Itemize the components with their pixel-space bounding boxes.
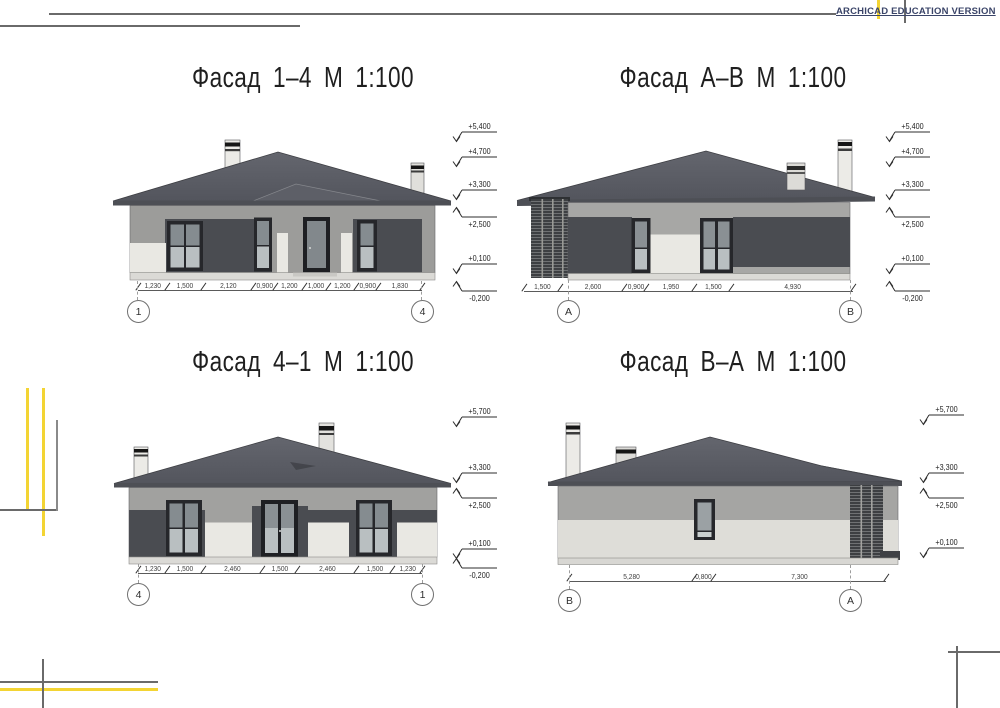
- levels-facade-4-1: +5,700+3,300+2,500+0,100-0,200: [452, 0, 498, 708]
- dim-segment: 1,200: [328, 282, 357, 298]
- dim-segment: 2,600: [561, 283, 625, 299]
- roof: [114, 437, 451, 484]
- window: [632, 218, 651, 273]
- dim-value: 2,120: [206, 281, 251, 290]
- dim-segment: 1,500: [262, 565, 298, 581]
- level-value: +3,300: [931, 462, 962, 472]
- axis-extension: [568, 280, 569, 300]
- elevation-marker: +5,700: [919, 402, 965, 428]
- dim-value: 1,500: [170, 281, 202, 290]
- decor-line-bl-h: [0, 681, 158, 683]
- level-value: +2,500: [931, 500, 962, 510]
- decor-line-left-v: [56, 420, 58, 511]
- wall-dark-panel: [733, 217, 850, 267]
- drawing-sheet: ARCHICAD EDUCATION VERSION Фасад 1–4 М 1…: [0, 0, 1000, 708]
- elevation-marker: +2,500: [452, 485, 498, 511]
- window: [357, 220, 377, 272]
- axis-extension: [421, 281, 422, 300]
- facade-title-4-1: Фасад 4–1 М 1:100: [147, 346, 459, 379]
- dim-segment: 1,830: [378, 282, 422, 298]
- dim-segment: 2,460: [298, 565, 357, 581]
- dim-value: 1,200: [277, 281, 302, 290]
- dim-segment: 1,500: [167, 282, 203, 298]
- elevation-marker: -0,200: [452, 555, 498, 581]
- decor-line-top-2: [0, 25, 300, 27]
- axis-extension: [138, 564, 139, 583]
- dim-value: 1,500: [170, 564, 202, 573]
- decor-yellow-left-1: [26, 388, 29, 511]
- dim-segment: 7,300: [713, 573, 886, 589]
- axis-marker-bb: В: [558, 589, 581, 612]
- dim-segment: 1,200: [275, 282, 304, 298]
- facade-title-a-b: Фасад А–В М 1:100: [577, 62, 889, 95]
- dim-value: 1,950: [650, 282, 692, 291]
- axis-marker-ab: А: [839, 589, 862, 612]
- wall-light-panel: [397, 523, 437, 558]
- axis-extension: [569, 565, 570, 589]
- level-value: +3,300: [464, 462, 495, 472]
- axis-extension: [850, 565, 851, 589]
- roof: [548, 437, 902, 483]
- elevation-marker: +5,700: [452, 404, 498, 430]
- plinth: [568, 274, 850, 281]
- window: [166, 500, 202, 556]
- facade-a-b-drawing: [515, 135, 880, 285]
- axis-extension: [850, 280, 851, 300]
- dim-value: 0,900: [626, 282, 645, 291]
- dim-value: 1,500: [697, 282, 729, 291]
- pergola-slats: [529, 197, 570, 278]
- dim-segment: 2,460: [203, 565, 262, 581]
- dim-segment: 1,230: [138, 282, 167, 298]
- elevation-marker: +2,500: [919, 485, 965, 511]
- dimension-row-1-4: 1,2301,5002,1200,9001,2001,0001,2000,900…: [138, 282, 422, 298]
- axis-marker-b: В: [839, 300, 862, 323]
- dim-value: 7,300: [723, 572, 875, 581]
- axis-marker-1b: 1: [411, 583, 434, 606]
- dim-segment: 1,950: [647, 283, 695, 299]
- decor-line-left-h: [0, 509, 58, 511]
- dimension-row-4-1: 1,2301,5002,4601,5002,4601,5001,230: [138, 565, 422, 581]
- dim-value: 1,500: [359, 564, 391, 573]
- level-value: +5,700: [464, 406, 495, 416]
- dim-segment: 1,500: [695, 283, 732, 299]
- dim-segment: 1,500: [167, 565, 203, 581]
- wall-light-band: [558, 520, 898, 558]
- porch-column: [277, 233, 288, 273]
- terrace-door: [261, 500, 298, 557]
- window: [700, 218, 733, 273]
- window: [254, 218, 272, 272]
- dim-segment: 4,930: [732, 283, 853, 299]
- dim-segment: 2,120: [203, 282, 254, 298]
- axis-marker-a: А: [557, 300, 580, 323]
- dim-value: 1,230: [140, 281, 166, 290]
- decor-yellow-left-2: [42, 388, 45, 536]
- facade-title-1-4: Фасад 1–4 М 1:100: [147, 62, 459, 95]
- elevation-marker: +3,300: [452, 460, 498, 486]
- facade-title-b-a: Фасад В–А М 1:100: [577, 346, 889, 379]
- wall-light-panel: [205, 523, 252, 558]
- entrance-door: [303, 217, 330, 273]
- door-step: [293, 273, 337, 277]
- dim-value: 1,500: [264, 564, 296, 573]
- dim-value: 0,800: [695, 572, 712, 581]
- dim-value: 1,830: [381, 281, 420, 290]
- dim-segment: 1,230: [138, 565, 167, 581]
- elevation-marker: +0,100: [919, 535, 965, 561]
- wall-light-panel: [130, 243, 166, 273]
- level-value: +0,100: [464, 538, 495, 548]
- fascia: [548, 482, 902, 487]
- fascia: [114, 483, 451, 488]
- roof-chimney: [787, 163, 805, 190]
- axis-extension: [422, 564, 423, 583]
- level-value: -0,200: [464, 570, 495, 580]
- dim-value: 1,230: [394, 564, 420, 573]
- roof: [517, 151, 875, 201]
- dim-segment: 1,500: [357, 565, 393, 581]
- facade-4-1-drawing: [110, 418, 455, 568]
- decor-line-top-1: [49, 13, 836, 15]
- dim-value: 5,280: [577, 572, 687, 581]
- dimension-row-b-a: 5,2800,8007,300: [569, 573, 886, 589]
- level-value: +5,700: [931, 404, 962, 414]
- dim-segment: 1,230: [393, 565, 422, 581]
- wall-light-panel: [650, 235, 700, 274]
- wall-dark-panel: [568, 217, 632, 274]
- axis-marker-4b: 4: [127, 583, 150, 606]
- window: [356, 500, 392, 556]
- axis-marker-1: 1: [127, 300, 150, 323]
- dim-value: 4,930: [739, 282, 846, 291]
- dim-value: 1,000: [306, 281, 327, 290]
- dimension-row-a-b: 1,5002,6000,9001,9501,5004,930: [524, 283, 853, 299]
- window: [694, 499, 715, 540]
- level-value: +2,500: [464, 500, 495, 510]
- plinth: [130, 273, 435, 281]
- dim-value: 0,900: [358, 281, 377, 290]
- elevation-marker: +3,300: [919, 460, 965, 486]
- window: [167, 221, 203, 271]
- facade-b-a-drawing: [540, 405, 915, 575]
- decor-line-bl-v: [42, 659, 44, 708]
- dim-segment: 5,280: [569, 573, 694, 589]
- dim-value: 0,900: [255, 281, 274, 290]
- dim-value: 1,230: [140, 564, 166, 573]
- dim-value: 2,460: [207, 564, 259, 573]
- dim-value: 2,600: [565, 282, 621, 291]
- fascia: [113, 201, 451, 206]
- plinth: [558, 558, 898, 565]
- porch-column: [341, 233, 352, 273]
- dim-segment: 1,500: [524, 283, 561, 299]
- axis-marker-4: 4: [411, 300, 434, 323]
- facade-1-4-drawing: [110, 135, 455, 285]
- decor-yellow-bl: [0, 688, 158, 691]
- wall-light-panel: [308, 523, 349, 558]
- dim-value: 1,500: [526, 282, 558, 291]
- axis-extension: [137, 281, 138, 300]
- level-value: +0,100: [931, 537, 962, 547]
- levels-facade-b-a: +5,700+3,300+2,500+0,100: [919, 0, 965, 708]
- dim-value: 2,460: [301, 564, 353, 573]
- dim-value: 1,200: [330, 281, 355, 290]
